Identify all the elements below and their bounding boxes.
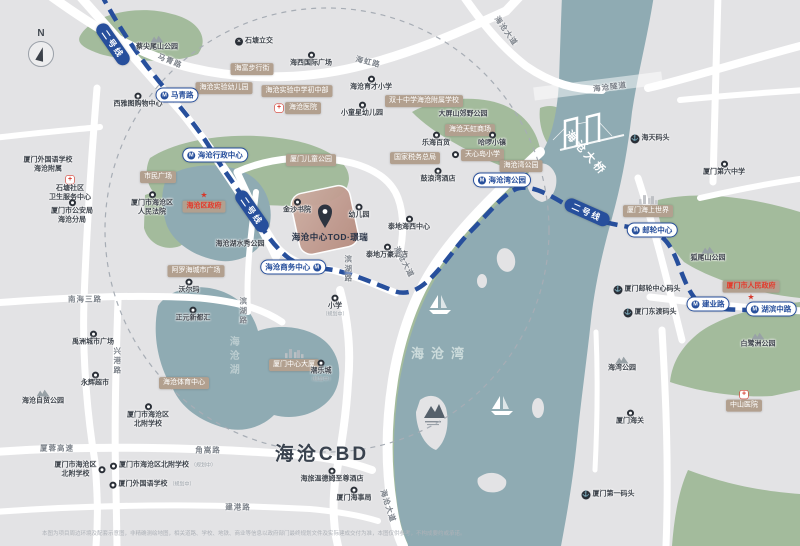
dot-icon	[359, 102, 366, 109]
tag-label: 海沧湾公园	[500, 160, 543, 172]
poi-label: 泰地海西中心	[388, 216, 430, 233]
compass-dial	[28, 41, 54, 67]
dot-icon	[351, 487, 358, 494]
metro-station: M海沧湾公园	[473, 173, 531, 188]
poi-label: 厦门外国语学校海沧附属	[24, 156, 73, 174]
mountain-icon	[616, 357, 629, 364]
dot-icon	[145, 403, 152, 410]
poi-label: 海旅温德姆至尊酒店	[301, 468, 364, 485]
cross-icon: +	[740, 391, 748, 399]
skyline-icon	[284, 349, 304, 358]
mountain-icon	[151, 36, 164, 43]
metro-icon: M	[751, 305, 759, 313]
road-label: 兴港路	[112, 347, 121, 376]
tag-label: 海沧体育中心	[159, 377, 209, 389]
metro-icon: M	[692, 300, 700, 308]
cross-icon: +	[275, 104, 283, 112]
dot-icon	[356, 204, 363, 211]
metro-icon: M	[187, 151, 195, 159]
disclaimer-text: 本图为项目周边环境及配套示意图，非精确测绘地图，相关道路、学校、地铁、商业等信息…	[42, 529, 466, 537]
poi-label: 白鹭洲公园	[741, 333, 776, 350]
poi-label: 厦门市海沧区北附学校	[127, 403, 169, 429]
interchange-icon: ✕	[235, 38, 243, 46]
road-label: 建港路	[225, 502, 251, 511]
poi-label: 哈啰小镇	[478, 132, 506, 149]
metro-station: M海沧行政中心	[182, 148, 248, 163]
poi-label: ⚓海天码头	[631, 135, 670, 144]
anchor-icon: ⚓	[624, 309, 633, 318]
mountain-icon	[37, 390, 50, 397]
metro-station: M湖滨中路	[746, 302, 797, 317]
poi-label: ⚓厦门邮轮中心码头	[614, 286, 681, 295]
tag-label: 厦门市人民政府★	[723, 281, 780, 302]
road-label: 南海三路	[68, 294, 102, 303]
compass-needle-icon	[35, 46, 46, 62]
tag-label: 海沧实验中学初中部	[262, 85, 333, 97]
poi-label: 西雅图购物中心	[114, 93, 163, 110]
poi-label: ✕石塘立交	[235, 38, 273, 47]
tag-label: 天心岛小学	[452, 149, 504, 161]
poi-label: 海沧自贸公园	[22, 390, 64, 407]
metro-station: M建业路	[687, 297, 730, 312]
star-icon: ★	[747, 293, 754, 301]
road-label: 滨湖路	[343, 255, 352, 284]
dot-icon	[186, 279, 193, 286]
dot-icon	[317, 360, 324, 367]
planned-note: （规划中）	[322, 312, 347, 317]
water-label: 海沧湖	[226, 336, 239, 378]
tag-label: 双十中学海沧附属学校	[385, 95, 463, 107]
dot-icon	[149, 191, 156, 198]
dot-icon	[294, 199, 301, 206]
anchor-icon: ⚓	[582, 491, 591, 500]
dot-icon	[368, 76, 375, 83]
dot-icon	[452, 152, 459, 159]
poi-label: 乐海百货	[422, 132, 450, 149]
poi-label: 小学（规划中）	[322, 295, 347, 318]
water-label: 海沧湾	[411, 346, 471, 362]
poi-label: 蔡尖尾山公园	[136, 36, 178, 53]
anchor-icon: ⚓	[614, 286, 623, 295]
dot-icon	[406, 216, 413, 223]
poi-label: 大屏山郊野公园	[439, 111, 488, 120]
anchor-icon: ⚓	[631, 135, 640, 144]
metro-station: M邮轮中心	[627, 223, 678, 238]
tag-label: 国家税务总局	[390, 152, 440, 164]
poi-label: 金沙书院	[283, 199, 311, 216]
dot-icon	[308, 52, 315, 59]
map-canvas: N 海沧中心TOD·璟瑞 本图为项目周边环境及配套示意图，非精确测绘地图，相关道…	[0, 0, 800, 546]
metro-icon: M	[478, 176, 486, 184]
poi-label: 厦门市海沧区北附学校	[55, 461, 106, 479]
poi-label: 海西国际广场	[290, 52, 332, 69]
dot-icon	[433, 132, 440, 139]
area-title: 海沧CBD	[275, 443, 369, 467]
dot-icon	[135, 93, 142, 100]
poi-label: 厦门第六中学	[703, 161, 745, 178]
planned-note: （规划中）	[191, 464, 216, 469]
poi-label: 厦门海关	[616, 410, 644, 427]
metro-icon: M	[632, 226, 640, 234]
tag-label: 市民广场	[140, 171, 176, 183]
tag-label: ★海沧区政府	[183, 192, 226, 213]
dot-icon	[721, 161, 728, 168]
planned-note: （规划中）	[169, 483, 194, 488]
dot-icon	[109, 482, 116, 489]
poi-label: 潮乐城（规划中）	[308, 360, 333, 383]
road-label: 角嵩路	[195, 445, 221, 454]
tag-label: 厦门儿童公园	[286, 154, 336, 166]
dot-icon	[329, 468, 336, 475]
dot-icon	[627, 410, 634, 417]
dot-icon	[90, 331, 97, 338]
poi-label: 海沧湖水秀公园	[216, 241, 265, 250]
dot-icon	[489, 132, 496, 139]
tag-label: 海富步行街	[231, 63, 274, 75]
poi-label: 正元新都汇	[176, 307, 211, 324]
mountain-icon	[752, 333, 765, 340]
compass: N	[28, 28, 54, 67]
metro-icon: M	[313, 263, 321, 271]
cross-icon: +	[66, 176, 74, 184]
poi-label: 幼儿园	[349, 204, 370, 221]
poi-label: ⚓厦门东渡码头	[624, 309, 677, 318]
poi-label: 狐尾山公园	[691, 247, 726, 264]
dot-icon	[110, 463, 117, 470]
dot-icon	[99, 467, 106, 474]
dot-icon	[384, 244, 391, 251]
dot-icon	[69, 199, 76, 206]
poi-label: ⚓厦门第一码头	[582, 491, 635, 500]
poi-label: 禹洲城市广场	[72, 331, 114, 348]
road-label: 厦蓉高速	[40, 443, 74, 452]
poi-label: 厦门市海沧区北附学校（规划中）	[110, 462, 216, 471]
poi-label: 厦门市海沧区人民法院	[131, 191, 173, 217]
tag-label: 阿罗海城市广场	[168, 265, 225, 277]
dot-icon	[435, 168, 442, 175]
skyline-icon	[638, 195, 658, 204]
poi-label: 鼓浪湾酒店	[421, 168, 456, 185]
compass-north-label: N	[37, 28, 44, 39]
tag-label: +海沧医院	[275, 102, 321, 114]
star-icon: ★	[200, 192, 207, 200]
poi-label: 永辉超市	[81, 372, 109, 389]
road-label: 滨湖路	[238, 297, 247, 326]
poi-label: 厦门市公安局海沧分局	[51, 199, 93, 225]
poi-label: 海湾公园	[608, 357, 636, 374]
poi-label: 海沧育才小学	[350, 76, 392, 93]
poi-label: 厦门海事局	[337, 487, 372, 504]
tag-label: +中山医院	[726, 391, 762, 412]
dot-icon	[92, 372, 99, 379]
tag-label: 厦门海上世界	[623, 195, 673, 217]
poi-label: 沃尔玛	[179, 279, 200, 296]
metro-station: 海沧商务中心M	[260, 260, 326, 275]
site-name-label: 海沧中心TOD·璟瑞	[292, 231, 369, 243]
tag-label: 海沧实验幼儿园	[196, 82, 253, 94]
dot-icon	[331, 295, 338, 302]
dot-icon	[190, 307, 197, 314]
planned-note: （规划中）	[308, 377, 333, 382]
poi-label: 小童星幼儿园	[341, 102, 383, 119]
poi-label: 厦门外国语学校（规划中）	[109, 481, 194, 490]
mountain-icon	[702, 247, 715, 254]
